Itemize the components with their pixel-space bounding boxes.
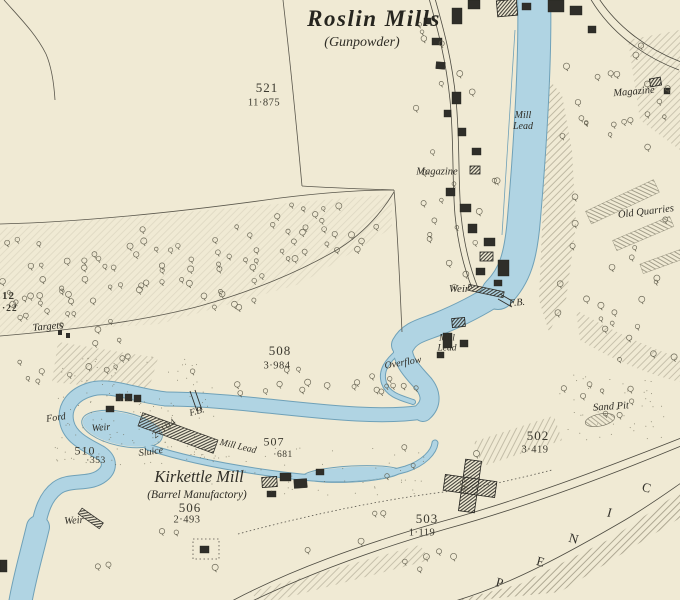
map-terrain — [0, 0, 680, 600]
map-canvas: Roslin Mills (Gunpowder) Magazine Mill L… — [0, 0, 680, 600]
